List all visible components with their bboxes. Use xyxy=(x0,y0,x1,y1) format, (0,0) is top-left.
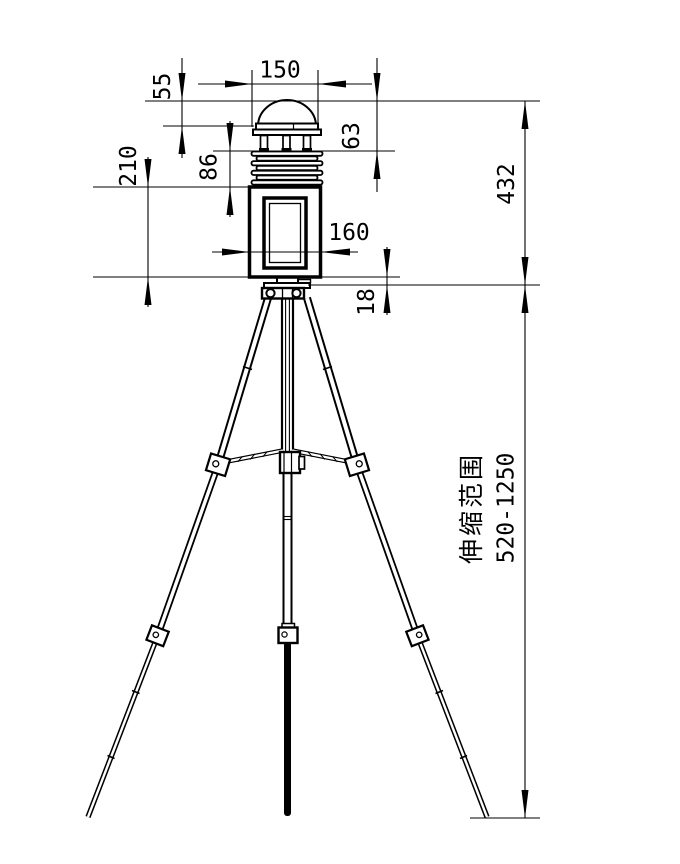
arrowhead xyxy=(522,257,529,285)
louver-shield xyxy=(252,152,323,185)
technical-drawing-canvas: 150 55 63 86 210 160 18 432 伸缩范围 520-125… xyxy=(0,0,680,864)
arrowhead xyxy=(222,249,250,256)
arrowhead xyxy=(374,73,381,101)
leg-clamp-lower-right xyxy=(406,625,428,646)
head-ear-left xyxy=(266,289,274,297)
dim-63 xyxy=(374,58,381,192)
range-label-text: 伸缩范围 xyxy=(457,452,486,564)
dim-18 xyxy=(384,247,391,315)
range-value-text: 520-1250 xyxy=(494,453,520,564)
dim-label-432: 432 xyxy=(494,163,520,205)
dim-label-63: 63 xyxy=(339,122,365,150)
leg-clamp-lower-left xyxy=(146,625,168,646)
dome-cap xyxy=(253,124,321,136)
arrowhead xyxy=(374,151,381,179)
arrowhead xyxy=(522,790,529,818)
column-collar xyxy=(279,624,298,644)
arrowhead xyxy=(145,159,152,187)
arrowhead xyxy=(522,285,529,313)
weather-station xyxy=(250,100,323,277)
arrowhead xyxy=(318,81,346,88)
dim-label-86: 86 xyxy=(197,153,223,181)
enclosure-panel xyxy=(264,198,306,268)
sensor-dome xyxy=(258,100,316,126)
dimension-drawing: 150 55 63 86 210 160 18 432 伸缩范围 520-125… xyxy=(0,0,680,864)
dim-label-18: 18 xyxy=(354,288,380,316)
arrowhead xyxy=(179,126,186,154)
leg-clamp-upper-right xyxy=(345,453,369,476)
center-column xyxy=(282,299,293,817)
tripod xyxy=(88,278,487,818)
tripod-leg-left xyxy=(88,298,268,817)
dim-label-160: 160 xyxy=(328,220,370,246)
dim-432-and-range xyxy=(522,101,529,818)
dim-label-55: 55 xyxy=(150,73,176,101)
dim-210 xyxy=(145,157,152,307)
arrowhead xyxy=(522,101,529,129)
leg-clamp-upper-left xyxy=(206,453,230,476)
support-posts xyxy=(259,136,312,152)
arrowhead xyxy=(227,187,234,215)
arrowhead xyxy=(321,249,351,256)
arrowhead xyxy=(384,285,391,313)
dim-86 xyxy=(227,121,234,217)
head-ear-right xyxy=(292,289,300,297)
column-lower-rod xyxy=(284,642,291,816)
dim-label-150: 150 xyxy=(259,58,301,84)
arrowhead xyxy=(145,277,152,305)
arrowhead xyxy=(384,249,391,277)
arrowhead xyxy=(179,73,186,101)
dim-55 xyxy=(179,58,186,158)
tripod-head xyxy=(262,278,311,299)
arrowhead xyxy=(225,81,252,88)
dim-label-210: 210 xyxy=(116,145,142,187)
column-center-block xyxy=(280,452,305,473)
spreader-brace-left xyxy=(222,451,283,463)
arrowhead xyxy=(227,123,234,151)
